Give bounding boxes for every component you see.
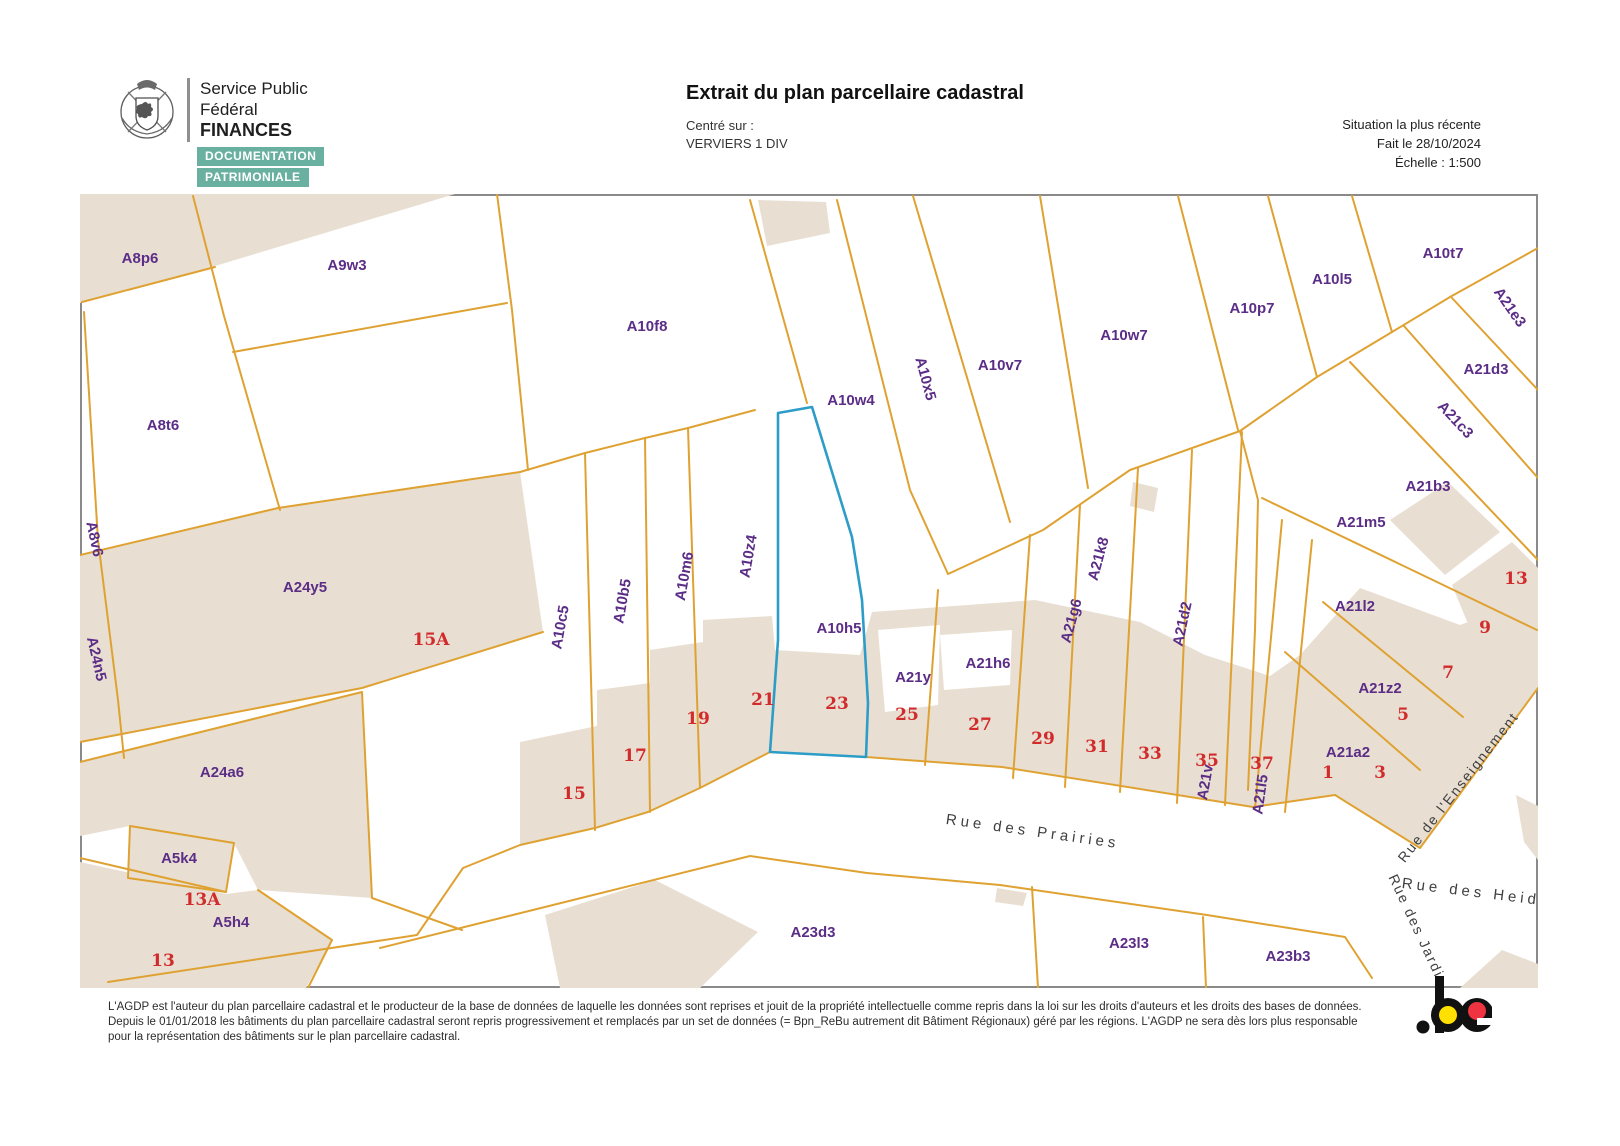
extract-metadata: Situation la plus récente Fait le 28/10/… — [1342, 115, 1481, 172]
parcel-label: A21m5 — [1336, 514, 1385, 531]
house-number: 23 — [825, 694, 849, 714]
parcel-label: A10w4 — [827, 392, 875, 409]
date-text: Fait le 28/10/2024 — [1342, 134, 1481, 153]
belgian-coat-of-arms-logo — [114, 74, 180, 144]
parcel-label: A10v7 — [978, 357, 1022, 374]
parcel-label: A5k4 — [161, 850, 198, 867]
org-line2: Fédéral — [200, 100, 258, 119]
be-logo — [1414, 968, 1492, 1040]
badge-patrimoniale: PATRIMONIALE — [197, 168, 309, 187]
parcel-label: A10t7 — [1423, 245, 1464, 262]
parcel-label: A21l2 — [1335, 598, 1375, 615]
parcel-label: A23b3 — [1265, 948, 1310, 965]
parcel-label: A8t6 — [147, 417, 180, 434]
parcel-label: A23l3 — [1109, 935, 1149, 952]
house-number: 17 — [623, 746, 647, 766]
parcel-label: A24y5 — [283, 579, 327, 596]
house-number: 9 — [1479, 618, 1491, 638]
house-number: 15A — [413, 630, 451, 650]
house-number: 13A — [184, 890, 222, 910]
parcel-label: A23d3 — [790, 924, 835, 941]
house-number: 7 — [1442, 663, 1454, 683]
cadastral-map: A8p6A9w3A8t6A8v6A24n5A24y5A24a6A5k4A5h4A… — [80, 194, 1538, 988]
parcel-label: A5h4 — [213, 914, 250, 931]
parcel-label: A21b3 — [1405, 478, 1450, 495]
house-number: 15 — [562, 784, 586, 804]
org-badges: DOCUMENTATION PATRIMONIALE — [197, 147, 324, 189]
org-line1: Service Public — [200, 79, 308, 98]
scale-text: Échelle : 1:500 — [1342, 153, 1481, 172]
parcel-label: A10l5 — [1312, 271, 1352, 288]
centered-on-label: Centré sur : — [686, 118, 754, 133]
house-number: 3 — [1374, 763, 1386, 783]
parcel-label: A21z2 — [1358, 680, 1401, 697]
house-number: 19 — [686, 709, 710, 729]
legal-disclaimer: L'AGDP est l'auteur du plan parcellaire … — [108, 1000, 1370, 1045]
org-name: Service Public Fédéral FINANCES — [200, 78, 308, 141]
parcel-label: A10f8 — [627, 318, 668, 335]
house-number: 27 — [968, 715, 992, 735]
parcel-label: A9w3 — [327, 257, 366, 274]
disclaimer-line2: les bâtiments du plan parcellaire cadast… — [108, 1016, 1358, 1043]
parcel-label: A10w7 — [1100, 327, 1148, 344]
house-number: 35 — [1195, 751, 1219, 771]
centered-on-value: VERVIERS 1 DIV — [686, 136, 788, 151]
parcel-label: A21y — [895, 669, 932, 686]
parcel-label: A10h5 — [816, 620, 861, 637]
house-number: 5 — [1397, 705, 1409, 725]
org-line3: FINANCES — [200, 120, 292, 140]
house-number: 31 — [1085, 737, 1109, 757]
house-number: 29 — [1031, 729, 1055, 749]
house-number: 25 — [895, 705, 919, 725]
house-number: 13 — [151, 951, 175, 971]
house-number: 37 — [1250, 754, 1274, 774]
parcel-label: A24a6 — [200, 764, 244, 781]
situation-text: Situation la plus récente — [1342, 115, 1481, 134]
house-number: 1 — [1322, 763, 1334, 783]
header-divider — [187, 78, 190, 142]
parcel-label: A8p6 — [122, 250, 159, 267]
parcel-label: A10p7 — [1229, 300, 1274, 317]
parcel-label: A21a2 — [1326, 744, 1370, 761]
cadastral-extract-page: { "header": { "org_line1": "Service Publ… — [0, 0, 1620, 1146]
house-number: 13 — [1504, 569, 1528, 589]
parcel-label: A21d3 — [1463, 361, 1508, 378]
parcel-label: A21h6 — [965, 655, 1010, 672]
page-title: Extrait du plan parcellaire cadastral — [686, 82, 1024, 105]
house-number: 21 — [751, 690, 775, 710]
disclaimer-line3: plan parcellaire cadastral. — [329, 1031, 460, 1043]
house-number: 33 — [1138, 744, 1162, 764]
badge-documentation: DOCUMENTATION — [197, 147, 324, 166]
